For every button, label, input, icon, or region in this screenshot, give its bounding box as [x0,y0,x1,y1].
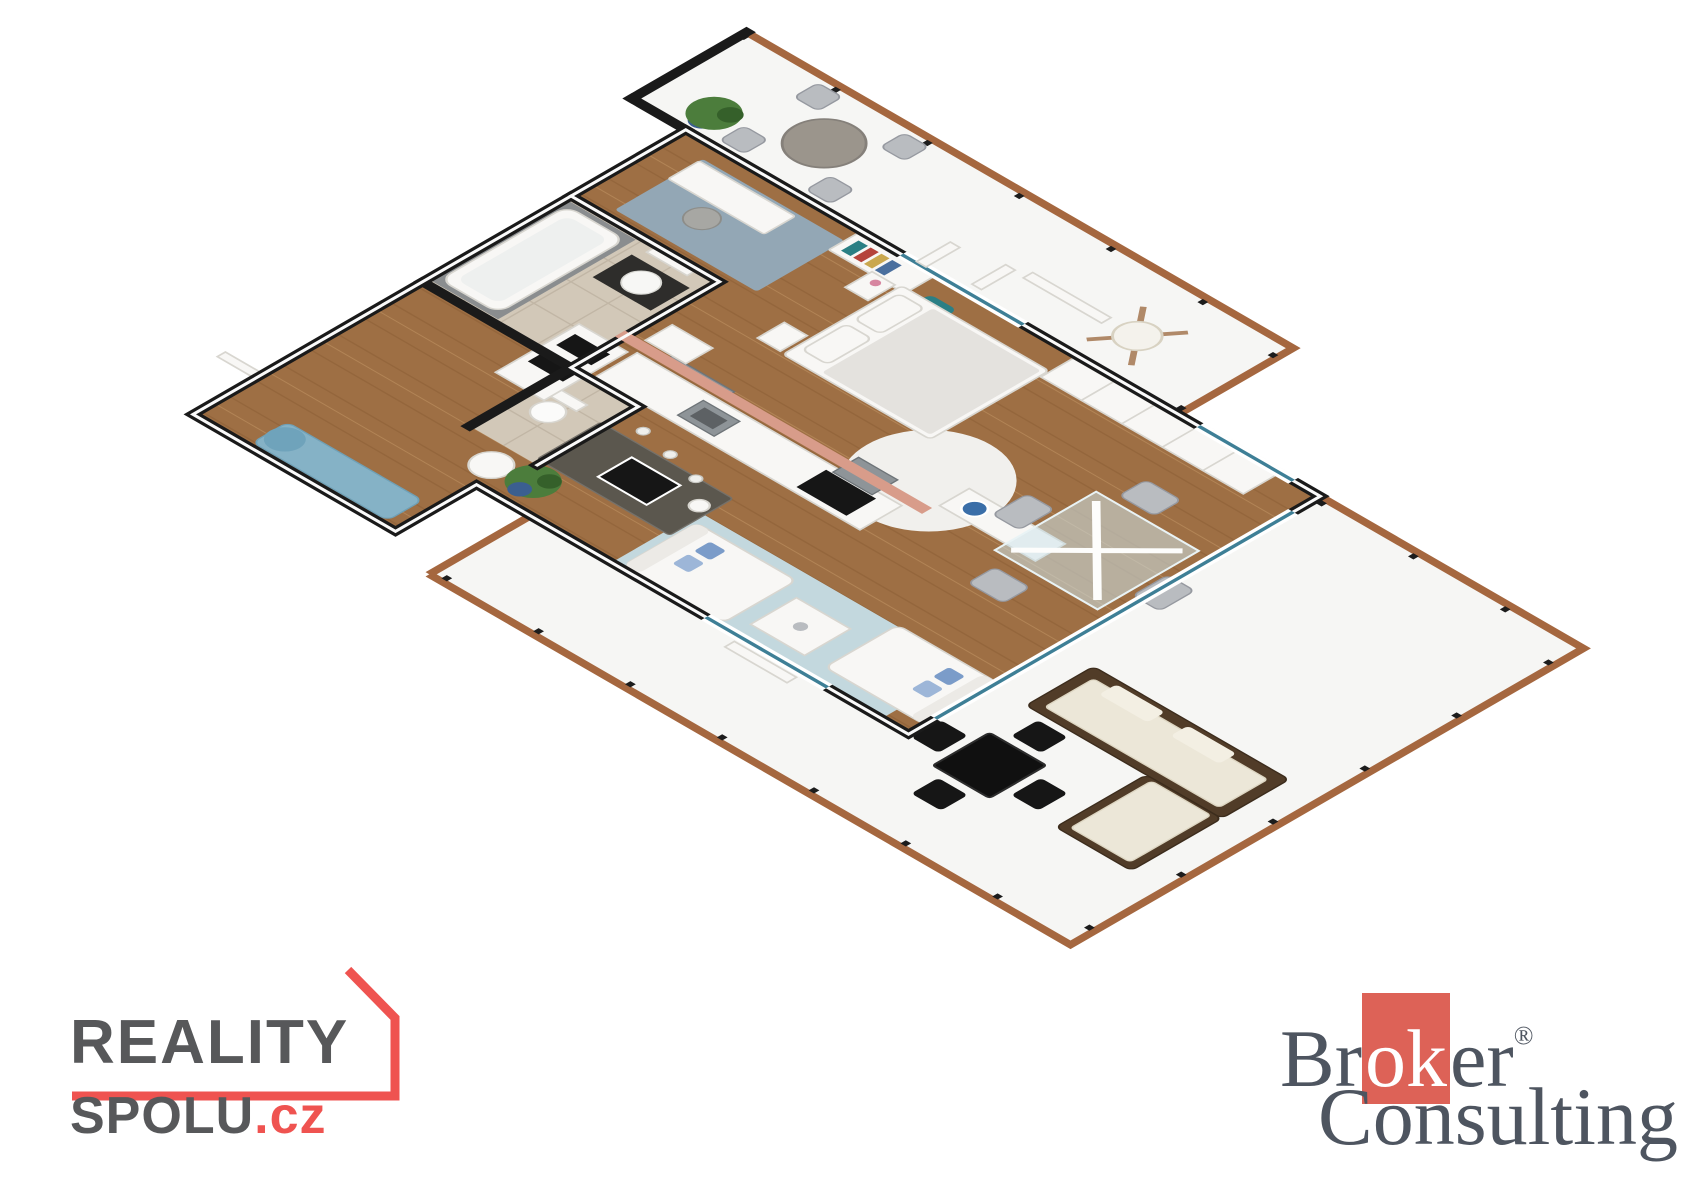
consulting-word: Consulting [1318,1076,1688,1158]
reality-spolu-tld: .cz [254,1087,326,1145]
reality-spolu-line2: SPOLU [70,1087,254,1145]
registered-mark: ® [1514,1021,1534,1050]
reality-spolu-logo: REALITY SPOLU.cz [70,1012,349,1142]
broker-consulting-logo: Broker® Consulting [1258,1018,1688,1158]
floorplan-render: REALITY SPOLU.cz Broker® Consulting [0,0,1698,1200]
reality-spolu-line1: REALITY [70,1012,349,1074]
